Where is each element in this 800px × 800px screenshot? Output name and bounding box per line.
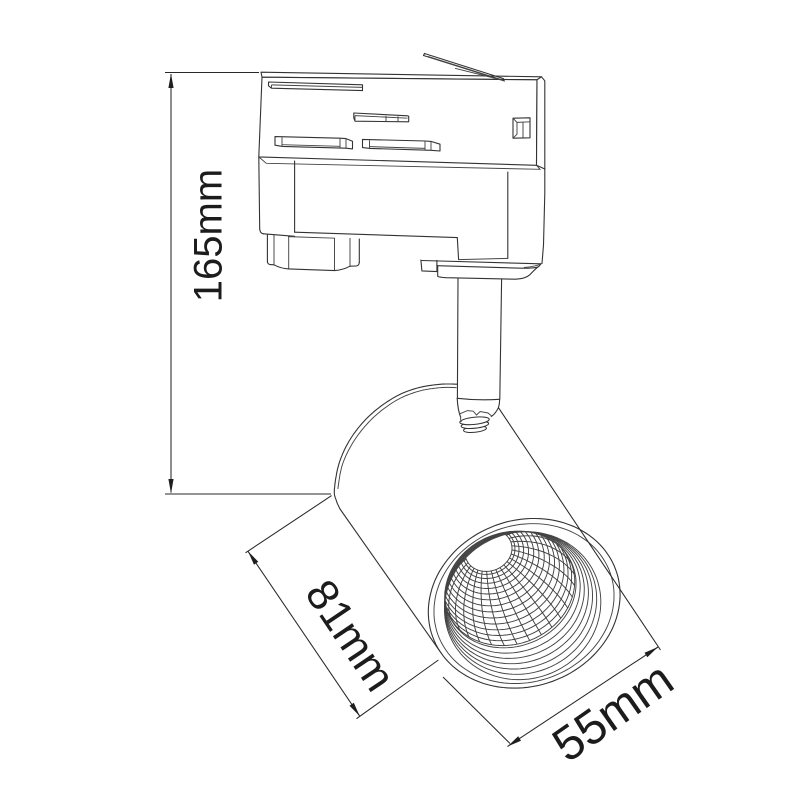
svg-text:165mm: 165mm	[187, 169, 231, 302]
